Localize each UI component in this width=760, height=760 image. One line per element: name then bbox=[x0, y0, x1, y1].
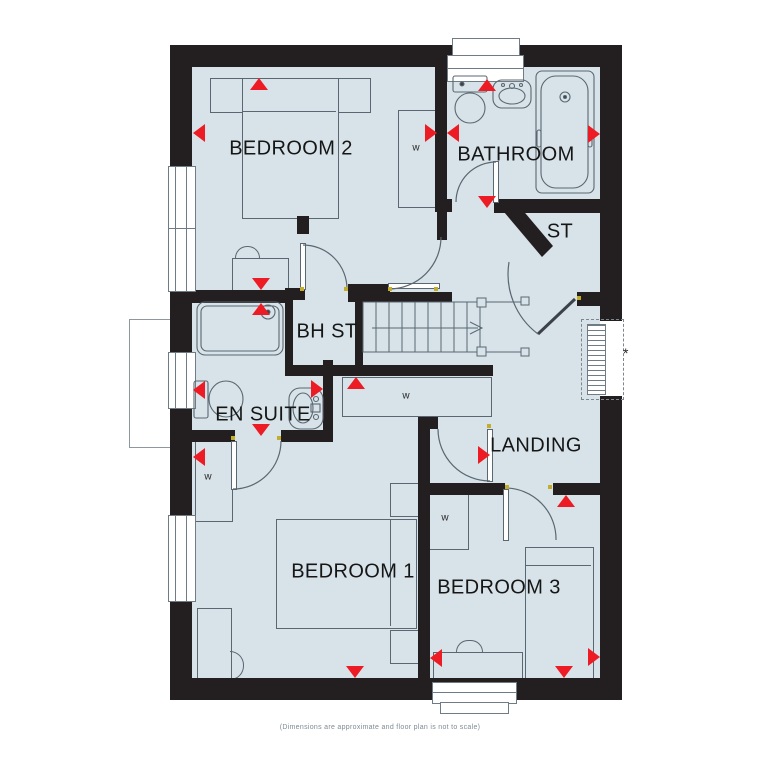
hinge-mark bbox=[505, 485, 509, 489]
floor-plan: * bbox=[0, 0, 760, 760]
hinge-mark bbox=[344, 287, 348, 291]
marker-triangle-up bbox=[557, 495, 575, 507]
marker-triangle-up bbox=[252, 303, 270, 315]
marker-triangle-down bbox=[346, 666, 364, 678]
label-storage: ST bbox=[547, 221, 573, 244]
bhst-door-arc bbox=[303, 245, 347, 289]
marker-triangle-up bbox=[478, 79, 496, 91]
marker-triangle-left bbox=[193, 448, 205, 466]
label-bathroom: BATHROOM bbox=[457, 144, 574, 167]
bathroom-toilet-bowl bbox=[455, 93, 485, 123]
marker-triangle-right bbox=[588, 125, 600, 143]
marker-triangle-down bbox=[478, 196, 496, 208]
label-landing: LANDING bbox=[490, 435, 582, 458]
marker-triangle-left bbox=[193, 124, 205, 142]
label-bedroom2: BEDROOM 2 bbox=[229, 138, 353, 161]
marker-triangle-down bbox=[252, 278, 270, 290]
wardrobe-label-bedroom2: w bbox=[412, 143, 419, 154]
bathroom-fixtures bbox=[453, 71, 594, 193]
marker-triangle-right bbox=[425, 124, 437, 142]
label-bedroom3: BEDROOM 3 bbox=[437, 577, 561, 600]
hinge-mark bbox=[300, 287, 304, 291]
marker-triangle-left bbox=[193, 381, 205, 399]
hinge-mark bbox=[577, 296, 581, 300]
hinge-mark bbox=[434, 287, 438, 291]
marker-triangle-left bbox=[447, 124, 459, 142]
marker-triangle-up bbox=[250, 78, 268, 90]
st-door bbox=[508, 262, 575, 334]
hinge-mark bbox=[388, 287, 392, 291]
marker-triangle-left bbox=[430, 649, 442, 667]
bathroom-bathtub bbox=[536, 71, 594, 193]
optional-window-asterisk: * bbox=[623, 345, 628, 361]
marker-triangle-down bbox=[555, 666, 573, 678]
staircase bbox=[363, 297, 529, 356]
disclaimer-caption: (Dimensions are approximate and floor pl… bbox=[280, 724, 481, 731]
label-ensuite: EN SUITE bbox=[215, 404, 310, 427]
marker-triangle-right bbox=[478, 446, 490, 464]
marker-triangle-right bbox=[311, 380, 323, 398]
hinge-mark bbox=[231, 436, 235, 440]
marker-triangle-up bbox=[347, 377, 365, 389]
wardrobe-label-understairs: w bbox=[402, 391, 409, 402]
plan-linework bbox=[0, 0, 760, 760]
bedroom2-door-arc bbox=[389, 237, 441, 289]
marker-triangle-right bbox=[588, 648, 600, 666]
bedroom3-door-arc bbox=[505, 488, 556, 540]
hinge-mark bbox=[548, 485, 552, 489]
ensuite-shower-tray bbox=[197, 302, 283, 355]
ensuite-door-arc bbox=[233, 441, 281, 489]
wall-st-diagonal bbox=[504, 201, 553, 257]
wardrobe-label-bedroom1: w bbox=[204, 472, 211, 483]
hinge-mark bbox=[277, 436, 281, 440]
label-bhst: BH ST bbox=[297, 321, 358, 344]
wardrobe-label-bedroom3: w bbox=[441, 513, 448, 524]
label-bedroom1: BEDROOM 1 bbox=[291, 561, 415, 584]
hinge-mark bbox=[487, 424, 491, 428]
